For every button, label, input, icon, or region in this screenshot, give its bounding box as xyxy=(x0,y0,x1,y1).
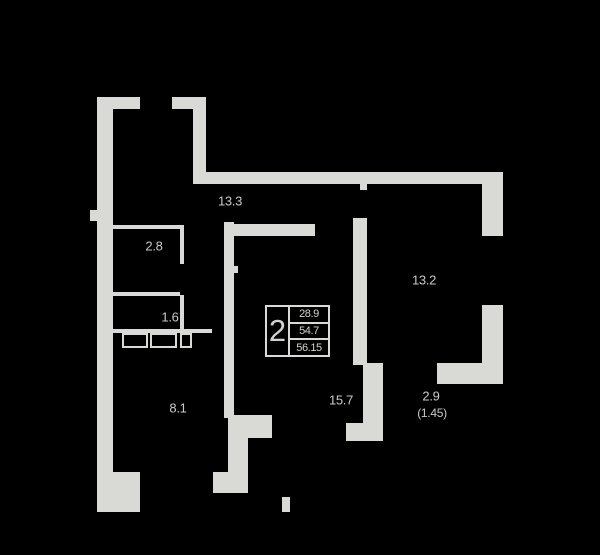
bottom-wall-chunk xyxy=(213,472,247,493)
top-wall-left xyxy=(97,97,140,109)
rooms-count: 2 xyxy=(267,307,290,355)
left-outer-wall xyxy=(97,97,113,512)
fixture-washer xyxy=(122,333,148,348)
total-area-value: 56.15 xyxy=(290,338,328,355)
room-2-8-label: 2.8 xyxy=(145,239,162,254)
central-left-wall xyxy=(224,222,234,418)
room-13-3-label: 13.3 xyxy=(218,194,242,209)
room28-right-wall-a xyxy=(180,225,184,264)
room-13-2-label: 13.2 xyxy=(412,273,436,288)
right-wall-upper xyxy=(482,172,503,236)
room28-bottom-wall xyxy=(113,292,180,296)
fixture-small xyxy=(180,333,192,348)
central-right-wall xyxy=(353,218,367,365)
floor-plan: 13.32.81.68.113.215.72.9(1.45) 2 28.9 54… xyxy=(0,0,600,555)
area-values: 28.9 54.7 56.15 xyxy=(290,307,328,355)
central-top-wall xyxy=(224,224,315,236)
apartment-area-value: 54.7 xyxy=(290,322,328,339)
fixture-sink xyxy=(150,333,177,348)
room-1-6-label: 1.6 xyxy=(161,310,178,325)
upper-corridor-wall xyxy=(195,172,503,184)
living-area-value: 28.9 xyxy=(290,307,328,322)
room-15-7-label: 15.7 xyxy=(329,393,353,408)
balcony-2-9-label: 2.9 xyxy=(422,389,439,404)
notch-top-wall xyxy=(228,415,272,438)
left-wall-bump xyxy=(90,210,97,221)
bottom-left-corner xyxy=(97,472,140,512)
room28-right-wall-b xyxy=(180,295,184,333)
door-jamb-top xyxy=(360,184,367,190)
door-jamb-central xyxy=(234,266,238,273)
bottom-jamb-tick xyxy=(282,497,290,512)
balcony-factor-label: (1.45) xyxy=(417,406,447,420)
room132-bottom-wall xyxy=(437,363,503,384)
balcony-foot-wall xyxy=(346,423,383,441)
entry-pier xyxy=(193,97,206,184)
apartment-summary-box: 2 28.9 54.7 56.15 xyxy=(265,305,330,357)
room28-top-wall xyxy=(113,225,184,229)
room-8-1-label: 8.1 xyxy=(169,401,186,416)
